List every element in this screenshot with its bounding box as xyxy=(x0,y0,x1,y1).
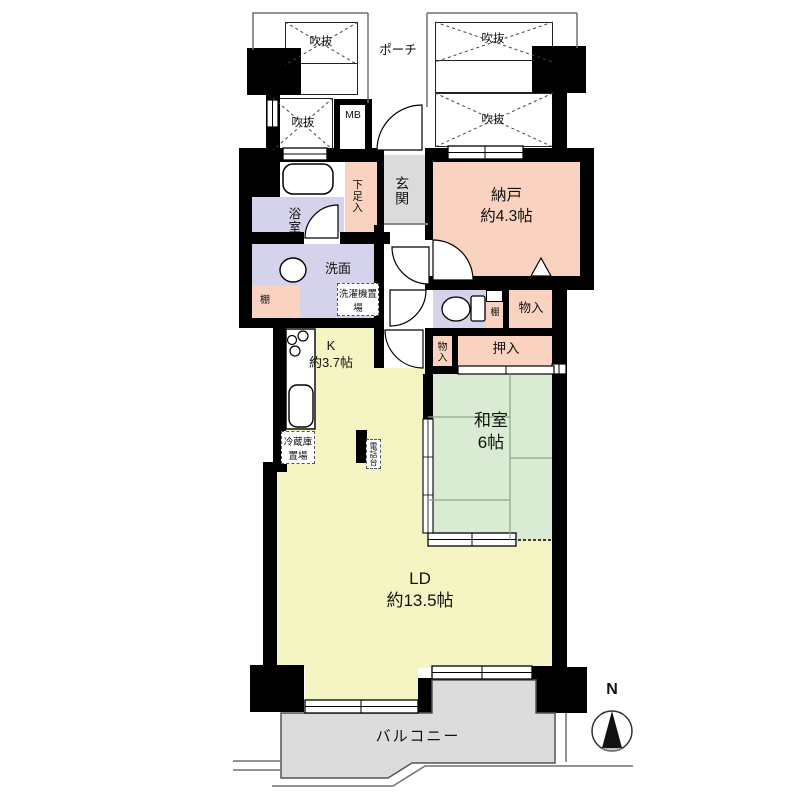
wall-oshiire-bottom xyxy=(425,366,554,374)
wall-toilet-closet-divider xyxy=(503,283,509,336)
bathroom-tub-floor xyxy=(280,162,344,197)
living-door-arc xyxy=(385,330,423,368)
wall-japanese-room-corner xyxy=(423,374,433,419)
compass-circle xyxy=(592,711,632,751)
bathroom-label: 浴室 xyxy=(286,200,300,240)
void-label-top-left: 吹抜 xyxy=(297,36,345,49)
porch-label: ポーチ xyxy=(372,43,424,57)
floor-plan: 吹抜 吹抜 吹抜 吹抜 ポーチ MB 玄関 下足入 浴室 納戸約4.3帖 洗面 … xyxy=(0,0,801,801)
toilet-shelf-label: 棚 xyxy=(487,307,503,317)
washroom-label: 洗面 xyxy=(308,262,368,277)
closet-top-label: 物入 xyxy=(510,301,552,315)
closet-small-label: 物入 xyxy=(435,339,445,365)
pillar-top-left xyxy=(247,48,301,95)
toilet-door-arc xyxy=(392,247,429,284)
void-label-top-right: 吹抜 xyxy=(469,33,517,46)
entrance-label: 玄関 xyxy=(394,163,410,219)
phone-stand-box: 電話台 xyxy=(366,439,381,469)
japanese-room-area xyxy=(428,374,553,540)
wall-toilet-bottom xyxy=(425,328,554,336)
shoe-cabinet-label: 下足入 xyxy=(351,166,363,226)
entrance-door-arc xyxy=(377,105,422,150)
pillar-bottom-left xyxy=(250,665,304,712)
wall-right-outer xyxy=(552,283,567,673)
wall-entrance-divider xyxy=(377,155,384,225)
wall-top-band-left xyxy=(239,148,345,162)
washroom-shelf-label: 棚 xyxy=(254,295,276,307)
outline-bottom xyxy=(272,713,633,786)
balcony-label: バルコニー xyxy=(352,728,484,745)
toilet-shelf-box xyxy=(486,290,503,302)
compass-base xyxy=(602,746,622,752)
storage-room-label: 納戸約4.3帖 xyxy=(433,186,580,228)
wall-storage-right xyxy=(580,148,594,290)
compass-needle xyxy=(602,711,622,748)
kitchen-label: K約3.7帖 xyxy=(300,338,362,372)
bath-door-opening xyxy=(304,232,340,244)
wall-closet-oshiire-divider xyxy=(452,336,458,366)
wall-right-upper xyxy=(552,93,567,155)
living-dining-extension xyxy=(305,668,418,702)
wall-bath-corner xyxy=(252,162,280,197)
toilet-area xyxy=(433,290,489,328)
hall-to-living-area xyxy=(374,368,425,440)
wall-living-bottom-step xyxy=(418,678,432,713)
void-label-mid-right: 吹抜 xyxy=(469,114,517,127)
pillar-top-right xyxy=(532,46,586,93)
wall-living-bottom-right xyxy=(527,666,554,680)
compass xyxy=(592,711,632,752)
void-label-mid-left: 吹抜 xyxy=(279,117,327,130)
washer-space-box: 洗濯機置場 xyxy=(337,283,379,316)
japanese-room-label: 和室6帖 xyxy=(452,410,530,454)
compass-north-label: N xyxy=(600,681,624,699)
living-dining-label: LD約13.5帖 xyxy=(358,568,482,612)
outline-bottom-left xyxy=(233,761,280,770)
wall-band-washroom-kitchen xyxy=(239,318,382,328)
wall-living-left xyxy=(263,462,277,668)
fridge-space-box: 冷蔵庫置場 xyxy=(281,431,315,464)
wall-storage-bottom xyxy=(428,276,554,290)
oshiire-label: 押入 xyxy=(460,341,552,357)
wall-hall-right-upper xyxy=(425,148,433,240)
washroom-door-arc xyxy=(390,290,426,326)
meter-box-label: MB xyxy=(344,110,362,121)
